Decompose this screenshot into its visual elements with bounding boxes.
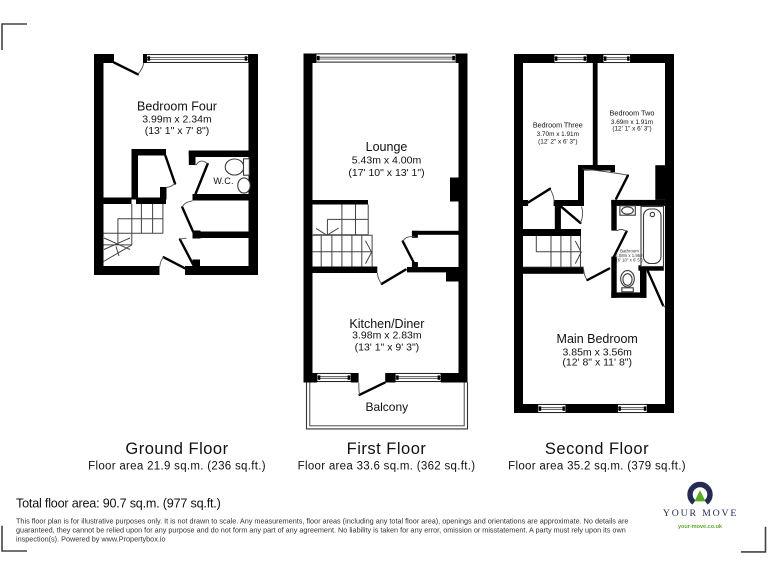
svg-text:Floor area 33.6 sq.m. (362 sq.: Floor area 33.6 sq.m. (362 sq.ft.) (298, 461, 476, 473)
svg-text:First Floor: First Floor (347, 440, 427, 458)
svg-text:Lounge: Lounge (366, 140, 408, 154)
svg-text:Bedroom Two: Bedroom Two (610, 109, 655, 118)
svg-text:Total floor area: 90.7 sq.m. (: Total floor area: 90.7 sq.m. (977 sq.ft.… (16, 497, 221, 511)
svg-text:Main Bedroom: Main Bedroom (557, 332, 638, 346)
svg-text:Second Floor: Second Floor (545, 440, 649, 458)
svg-text:Balcony: Balcony (365, 400, 408, 414)
svg-text:Bedroom Four: Bedroom Four (137, 100, 217, 114)
svg-text:(13' 1" x 9' 3"): (13' 1" x 9' 3") (355, 341, 420, 353)
svg-text:(12' 8" x 11' 8"): (12' 8" x 11' 8") (562, 356, 632, 368)
svg-text:inspection(s). Powered by www.: inspection(s). Powered by www.Propertybo… (16, 535, 166, 544)
svg-text:(6' 10" x 6' 5"): (6' 10" x 6' 5") (616, 258, 643, 263)
svg-text:3.70m x 1.91m: 3.70m x 1.91m (537, 131, 579, 138)
svg-text:W.C.: W.C. (213, 176, 233, 186)
svg-text:Ground Floor: Ground Floor (125, 440, 228, 458)
svg-text:Floor area 21.9 sq.m. (236 sq.: Floor area 21.9 sq.m. (236 sq.ft.) (88, 461, 266, 473)
svg-text:Floor area 35.2 sq.m. (379 sq.: Floor area 35.2 sq.m. (379 sq.ft.) (508, 461, 686, 473)
svg-text:3.98m x 2.83m: 3.98m x 2.83m (352, 330, 422, 342)
svg-text:(12' 2" x 6' 3"): (12' 2" x 6' 3") (538, 139, 577, 146)
svg-text:your-move.co.uk: your-move.co.uk (678, 524, 723, 530)
svg-text:5.43m x 4.00m: 5.43m x 4.00m (352, 155, 422, 167)
svg-text:Bedroom Three: Bedroom Three (533, 121, 583, 130)
svg-text:guaranteed, they cannot be rel: guaranteed, they cannot be relied upon f… (16, 526, 626, 535)
svg-text:YOUR MOVE: YOUR MOVE (663, 508, 738, 519)
svg-text:(13' 1" x 7' 8"): (13' 1" x 7' 8") (145, 125, 210, 137)
svg-text:This floor plan is for illustr: This floor plan is for illustrative purp… (16, 517, 628, 526)
svg-text:(12' 1" x 6' 3"): (12' 1" x 6' 3") (612, 126, 651, 133)
svg-text:(17' 10" x 13' 1"): (17' 10" x 13' 1") (348, 167, 424, 179)
svg-text:3.99m x 2.34m: 3.99m x 2.34m (142, 114, 212, 126)
